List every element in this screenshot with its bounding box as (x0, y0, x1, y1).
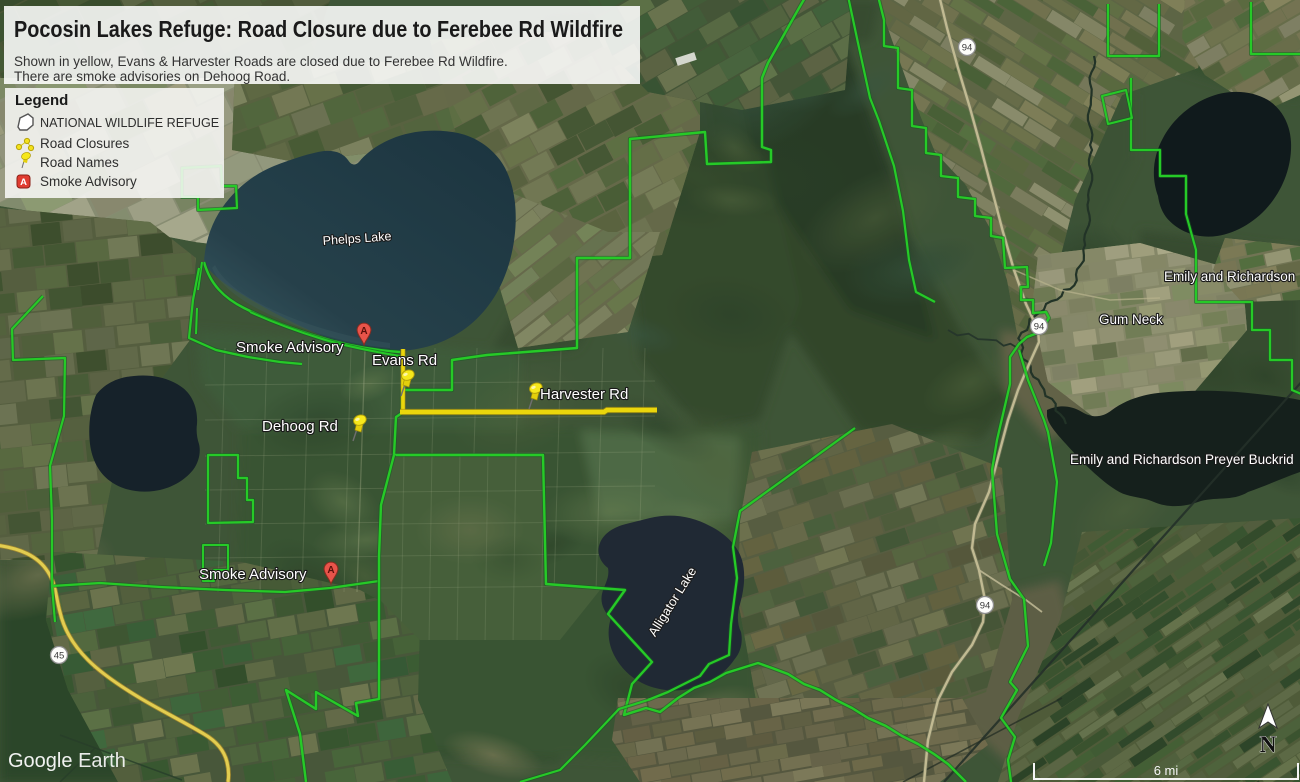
svg-text:Evans Rd: Evans Rd (372, 352, 437, 369)
svg-text:94: 94 (980, 600, 991, 611)
svg-text:Legend: Legend (15, 92, 68, 109)
svg-text:6 mi: 6 mi (1154, 763, 1179, 778)
svg-text:Emily and Richardson: Emily and Richardson (1164, 269, 1295, 284)
svg-text:Smoke Advisory: Smoke Advisory (199, 566, 307, 583)
svg-text:Dehoog Rd: Dehoog Rd (262, 418, 338, 435)
svg-text:A: A (20, 177, 27, 188)
svg-text:Road Names: Road Names (40, 155, 119, 170)
svg-text:Google Earth: Google Earth (8, 750, 126, 772)
svg-text:Smoke Advisory: Smoke Advisory (40, 174, 137, 189)
svg-text:94: 94 (1034, 321, 1045, 332)
svg-text:45: 45 (54, 650, 65, 661)
svg-text:94: 94 (962, 42, 973, 53)
svg-text:Smoke Advisory: Smoke Advisory (236, 339, 344, 356)
svg-text:A: A (360, 326, 367, 337)
svg-text:Gum Neck: Gum Neck (1099, 312, 1163, 327)
svg-text:There are smoke advisories on: There are smoke advisories on Dehoog Roa… (14, 69, 290, 84)
svg-text:Road Closures: Road Closures (40, 136, 130, 151)
svg-text:Emily and Richardson Preyer Bu: Emily and Richardson Preyer Buckrid (1070, 452, 1294, 467)
svg-text:A: A (327, 565, 334, 576)
svg-text:Pocosin Lakes Refuge: Road Clo: Pocosin Lakes Refuge: Road Closure due t… (14, 16, 623, 42)
svg-text:Harvester Rd: Harvester Rd (540, 386, 628, 403)
svg-text:N: N (1260, 732, 1277, 757)
svg-text:NATIONAL WILDLIFE REFUGE: NATIONAL WILDLIFE REFUGE (40, 116, 219, 130)
svg-text:Shown in yellow, Evans & Harve: Shown in yellow, Evans & Harvester Roads… (14, 54, 508, 69)
